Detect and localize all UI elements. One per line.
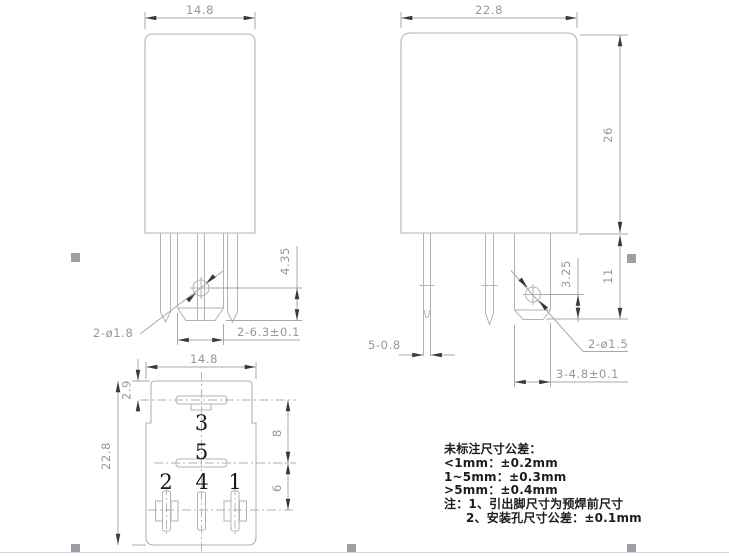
pin1-number: 1 bbox=[228, 470, 241, 494]
side-view: 22.8 26 11 3.25 bbox=[368, 3, 628, 387]
pin4-number: 4 bbox=[195, 470, 208, 494]
relay-body-front bbox=[145, 34, 255, 233]
selection-handle-middle-right[interactable] bbox=[627, 254, 636, 263]
front-hole-height-dimension: 4.35 bbox=[212, 246, 302, 321]
tolerance-notes: 未标注尺寸公差： <1mm：±0.2mm 1~5mm：±0.3mm >5mm：±… bbox=[444, 443, 654, 526]
front-pin-left bbox=[161, 233, 171, 322]
note-mounting-hole: 2、安装孔尺寸公差：±0.1mm bbox=[444, 512, 654, 526]
front-bracket-width-dimension: 2-6.3±0.1 bbox=[178, 313, 301, 345]
side-pin-thickness-label: 5-0.8 bbox=[368, 338, 401, 352]
front-bracket-width-label: 2-6.3±0.1 bbox=[237, 325, 300, 339]
front-bracket-base bbox=[178, 308, 224, 321]
tolerance-under-1mm: <1mm：±0.2mm bbox=[444, 457, 654, 471]
side-width-dimension: 22.8 bbox=[401, 3, 577, 28]
front-hole-callout-label: 2-ø1.8 bbox=[93, 326, 133, 340]
front-view: 14.8 4.35 2-ø1.8 2-6.3±0.1 bbox=[93, 3, 302, 345]
front-width-label: 14.8 bbox=[186, 3, 214, 17]
relay-body-side bbox=[401, 33, 577, 233]
bottom-edge-offset-label: 2.9 bbox=[120, 380, 134, 400]
pin-pitch-8-label: 8 bbox=[270, 429, 284, 437]
pin-pitch-6-label: 6 bbox=[270, 484, 284, 492]
pin-pitch-8-dimension: 8 bbox=[270, 400, 288, 463]
bottom-width-label: 14.8 bbox=[190, 352, 218, 366]
bottom-height-label: 22.8 bbox=[99, 442, 113, 470]
side-bracket-width-dimension: 3-4.8±0.1 bbox=[515, 323, 629, 387]
notes-title: 未标注尺寸公差： bbox=[444, 443, 654, 457]
side-pin-thickness-dimension: 5-0.8 bbox=[368, 338, 455, 355]
bottom-width-dimension: 14.8 bbox=[146, 352, 256, 379]
side-hole-callout-label: 2-ø1.5 bbox=[588, 337, 628, 351]
pin2-number: 2 bbox=[159, 470, 172, 494]
side-bracket-base bbox=[515, 310, 551, 320]
page-bottom-edge bbox=[0, 552, 729, 553]
front-pin-right bbox=[228, 233, 238, 322]
note-pin-dimensions: 注：1、引出脚尺寸为预焊前尺寸 bbox=[444, 498, 654, 512]
side-bracket-width-label: 3-4.8±0.1 bbox=[556, 367, 619, 381]
relay-technical-drawing: 14.8 4.35 2-ø1.8 2-6.3±0.1 bbox=[0, 0, 729, 556]
side-pin-coil-notch bbox=[425, 310, 430, 318]
pin3-number: 3 bbox=[195, 411, 208, 435]
bottom-height-dimension: 22.8 bbox=[99, 381, 146, 545]
selection-handle-middle-left[interactable] bbox=[71, 253, 80, 262]
front-width-dimension: 14.8 bbox=[145, 3, 255, 29]
side-height-label: 26 bbox=[601, 127, 615, 143]
tolerance-1-to-5mm: 1~5mm：±0.3mm bbox=[444, 471, 654, 485]
side-base-height-label: 11 bbox=[601, 268, 615, 284]
side-pin-middle bbox=[486, 233, 494, 325]
bottom-edge-offset-dimension: 2.9 bbox=[120, 359, 151, 412]
front-hole-height-label: 4.35 bbox=[278, 247, 292, 275]
side-width-label: 22.8 bbox=[475, 3, 503, 17]
pin5-number: 5 bbox=[195, 440, 208, 464]
pin-pitch-6-dimension: 6 bbox=[270, 463, 288, 510]
front-hole-callout: 2-ø1.8 bbox=[93, 271, 223, 340]
bottom-view: 3 5 2 4 1 14.8 2.9 22.8 bbox=[99, 352, 296, 551]
side-height-dimension: 26 bbox=[579, 35, 628, 234]
side-hole-height-label: 3.25 bbox=[559, 260, 573, 288]
